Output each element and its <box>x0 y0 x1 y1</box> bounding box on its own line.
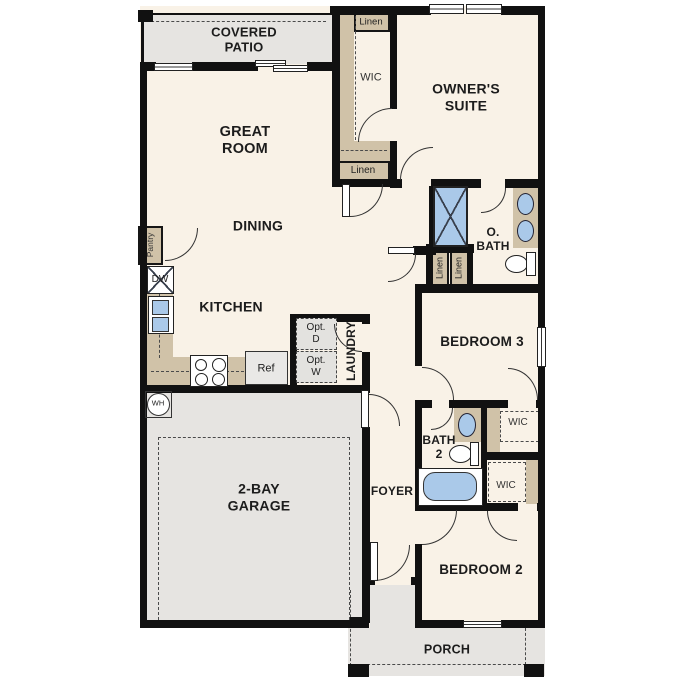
wall <box>362 314 370 324</box>
hall-door-leaf <box>388 247 415 254</box>
porch-label: PORCH <box>424 643 470 658</box>
wall <box>449 400 508 408</box>
stove-burner <box>195 359 207 371</box>
bedroom2-window <box>463 621 502 628</box>
bath2-tub-basin <box>423 472 477 501</box>
wall <box>411 577 422 585</box>
wall <box>140 62 147 628</box>
pantry-label: Pantry <box>145 233 155 258</box>
wall <box>390 13 397 109</box>
stove-burner <box>212 373 225 386</box>
garage-door-dashed-outline <box>158 437 350 620</box>
linen-top-label: Linen <box>359 16 382 27</box>
porch-dashed-line <box>525 628 526 665</box>
bath2-toilet-tank <box>470 442 479 466</box>
foyer-label: FOYER <box>371 484 413 498</box>
bath2-label: BATH 2 <box>422 433 455 461</box>
linen-hall-label: Linen <box>351 165 375 177</box>
bedroom3-window <box>537 327 546 367</box>
wall <box>140 620 369 628</box>
porch-dashed-line <box>352 664 526 665</box>
kitchen-sink-basin <box>152 300 169 315</box>
floor-plan: COVERED PATIO GREAT ROOM DINING KITCHEN … <box>0 0 687 687</box>
garage-door-leaf <box>361 390 369 428</box>
stove-burner <box>212 358 226 372</box>
opt-dryer-label: Opt. D <box>307 322 326 346</box>
wall <box>481 503 518 511</box>
kitchen-sink-basin <box>152 317 169 332</box>
entry-walkway-area <box>370 585 415 628</box>
great-room-window <box>154 63 193 71</box>
wall <box>192 62 258 71</box>
owners-bath-label: O. BATH <box>476 225 509 253</box>
wall <box>415 292 422 366</box>
wall <box>415 544 422 628</box>
wall <box>415 400 432 408</box>
owners-suite-label: OWNER'S SUITE <box>432 80 500 113</box>
wic-bedroom2-label: WIC <box>496 480 515 492</box>
wall <box>138 10 153 22</box>
garage-label: 2-BAY GARAGE <box>228 480 291 513</box>
wall <box>415 620 464 628</box>
wic-bedroom3-shelf <box>487 408 500 453</box>
great-room-label: GREAT ROOM <box>220 124 271 158</box>
wall <box>390 179 402 188</box>
owners-bath-sink-2 <box>517 220 534 242</box>
linen-bath-label-1: Linen <box>435 257 446 279</box>
water-heater-label: WH <box>152 400 165 409</box>
owners-bath-toilet <box>505 255 528 273</box>
hall-shelf <box>338 141 390 161</box>
bedroom3-label: BEDROOM 3 <box>440 334 524 350</box>
wall <box>415 284 545 293</box>
porch-dashed-line <box>350 590 351 666</box>
hall-shelf-dashed-line <box>341 150 387 151</box>
patio-roof-dashed-line <box>146 21 326 22</box>
owners-bath-sink-1 <box>517 193 534 215</box>
wall <box>538 6 545 329</box>
wall <box>536 400 545 408</box>
linen-bath-label-2: Linen <box>454 257 465 279</box>
wall <box>350 617 369 628</box>
owners-bath-toilet-tank <box>526 252 536 276</box>
kitchen-label: KITCHEN <box>199 299 263 316</box>
refrigerator-label: Ref <box>257 363 274 376</box>
wic-owners-shelf <box>340 13 354 142</box>
bath2-sink <box>458 413 476 437</box>
dishwasher-label: DW <box>152 274 169 286</box>
wic-shelf-dashed-line <box>355 16 356 140</box>
patio-slider-pane <box>273 65 308 72</box>
bedroom2-label: BEDROOM 2 <box>439 562 523 578</box>
wall <box>307 62 332 71</box>
hall-closet-door-leaf <box>342 184 350 217</box>
owners-suite-window <box>466 4 502 14</box>
porch-post <box>524 664 544 677</box>
wall <box>332 13 340 187</box>
wall <box>140 385 370 393</box>
opt-washer-label: Opt. W <box>307 355 326 379</box>
wic-owners-label: WIC <box>360 72 381 85</box>
dining-label: DINING <box>233 218 283 235</box>
covered-patio-label: COVERED PATIO <box>211 25 277 56</box>
wall <box>537 503 545 511</box>
wic-bedroom3-label: WIC <box>508 417 527 429</box>
laundry-label: LAUNDRY <box>344 321 358 381</box>
wic-bedroom2-shelf <box>526 460 538 504</box>
stove-burner <box>195 373 208 386</box>
wall <box>413 246 436 255</box>
porch-post <box>348 664 369 677</box>
wall <box>505 179 545 188</box>
wall <box>501 620 545 628</box>
shower <box>433 186 468 247</box>
wall <box>487 452 545 460</box>
wall <box>330 6 431 15</box>
wall <box>362 427 370 623</box>
owners-suite-window <box>429 4 464 14</box>
